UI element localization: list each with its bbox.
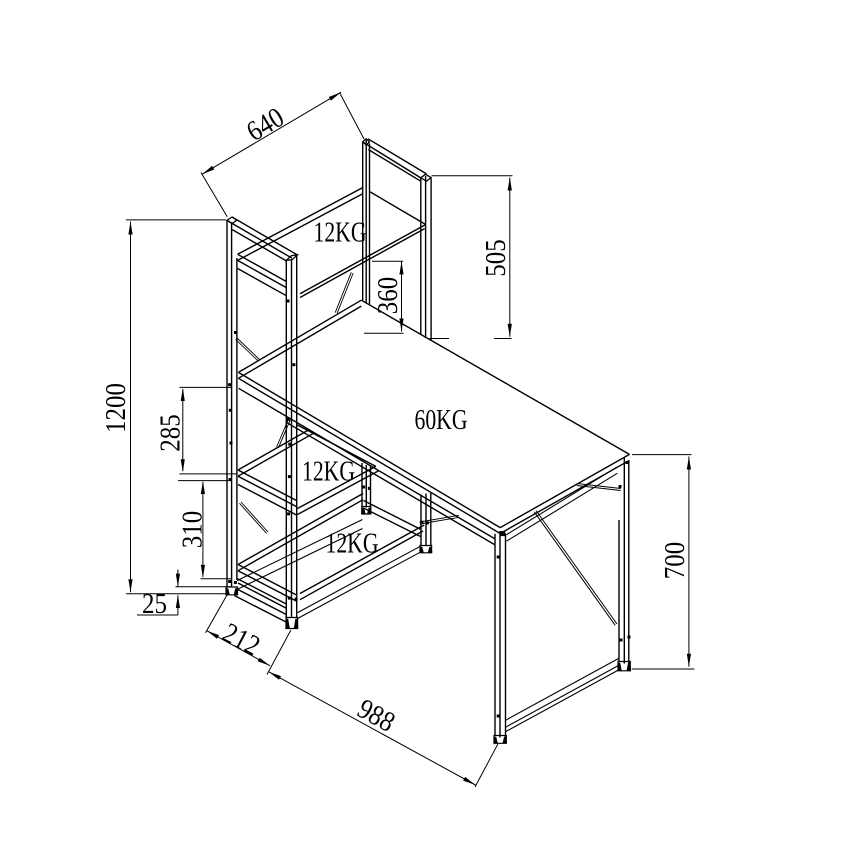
svg-text:12KG: 12KG [314, 218, 367, 249]
svg-text:310: 310 [178, 511, 209, 549]
svg-text:60KG: 60KG [415, 405, 468, 436]
svg-text:12KG: 12KG [302, 457, 355, 488]
svg-text:700: 700 [660, 542, 691, 580]
svg-text:12KG: 12KG [326, 529, 379, 560]
svg-text:25: 25 [142, 589, 167, 620]
svg-text:505: 505 [481, 239, 512, 277]
svg-text:1200: 1200 [101, 383, 132, 433]
svg-text:360: 360 [373, 277, 404, 315]
svg-text:285: 285 [156, 414, 187, 452]
